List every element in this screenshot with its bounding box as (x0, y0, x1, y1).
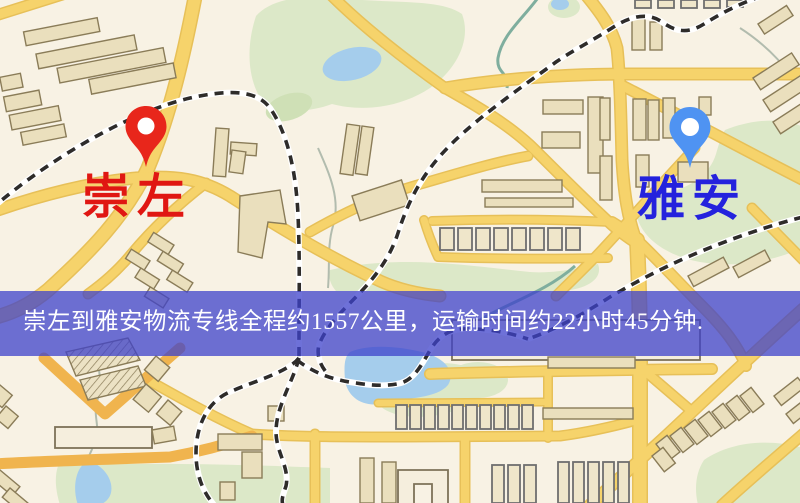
route-info-banner: 崇左到雅安物流专线全程约1557公里，运输时间约22小时45分钟. (0, 291, 800, 356)
destination-city-label[interactable]: 雅安 (637, 176, 747, 224)
destination-pin-icon[interactable] (667, 106, 713, 169)
origin-city-label[interactable]: 崇左 (82, 174, 192, 222)
map-canvas[interactable] (0, 0, 800, 503)
route-info-text: 崇左到雅安物流专线全程约1557公里，运输时间约22小时45分钟. (0, 291, 800, 354)
map-screenshot: 崇左到雅安物流专线全程约1557公里，运输时间约22小时45分钟. 崇左 雅安 (0, 0, 800, 503)
origin-pin-icon[interactable] (123, 105, 169, 168)
